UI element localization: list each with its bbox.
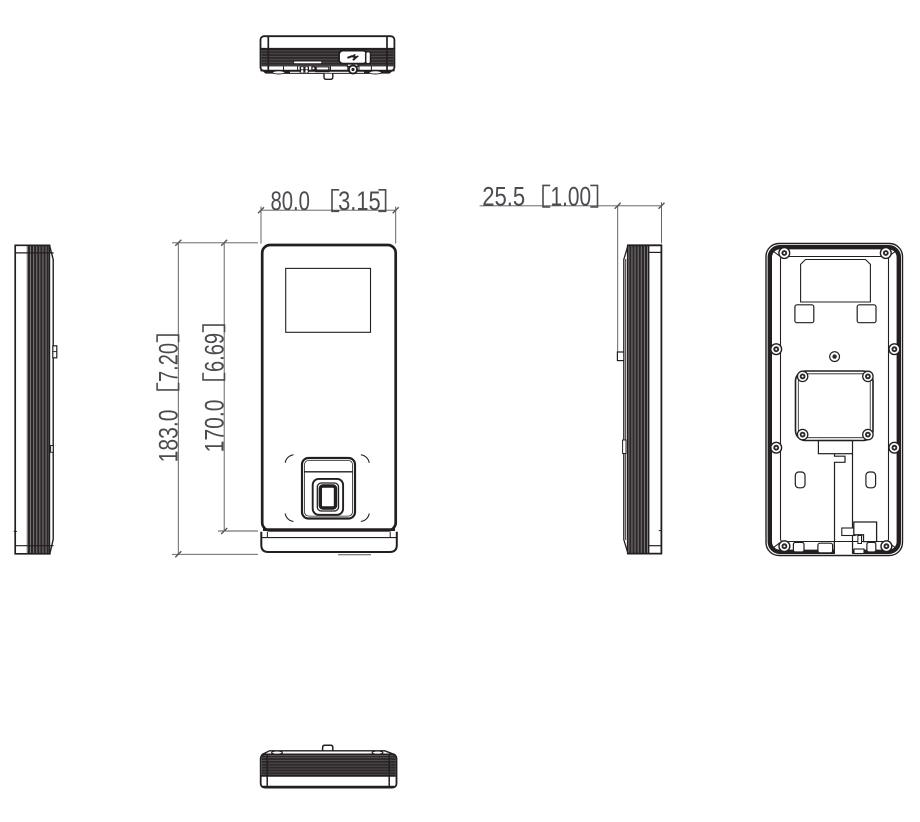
- svg-text:1.00: 1.00: [551, 182, 592, 212]
- svg-text:170.0: 170.0: [199, 399, 229, 452]
- svg-text:6.69: 6.69: [199, 333, 229, 372]
- svg-text:7.20: 7.20: [153, 343, 183, 382]
- svg-text:80.0: 80.0: [270, 186, 310, 216]
- svg-text:25.5: 25.5: [482, 182, 525, 212]
- svg-text:3.15: 3.15: [338, 186, 381, 216]
- svg-text:183.0: 183.0: [153, 409, 183, 462]
